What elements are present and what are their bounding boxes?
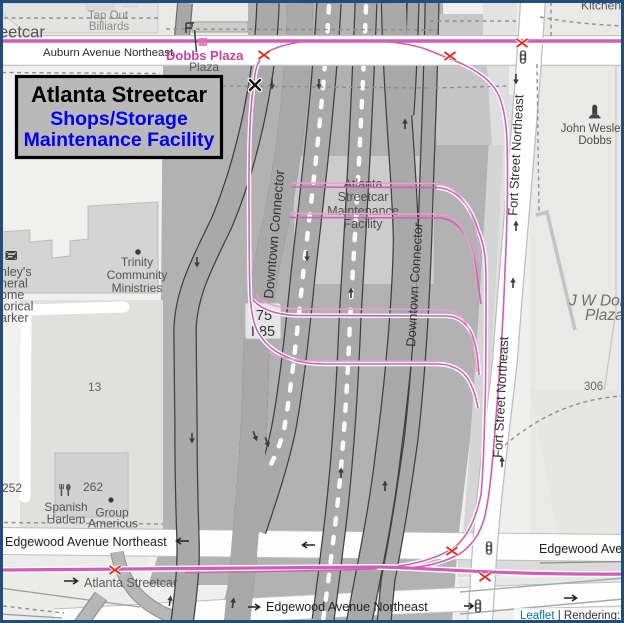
svg-text:Plaza: Plaza — [585, 307, 624, 324]
svg-text:Atlanta Streetcar: Atlanta Streetcar — [84, 576, 177, 590]
svg-text:306: 306 — [584, 381, 603, 393]
svg-text:Harlem: Harlem — [47, 512, 86, 526]
svg-text:Maintenance: Maintenance — [327, 204, 399, 218]
svg-text:Edgewood Ave: Edgewood Ave — [539, 542, 622, 556]
svg-text:Edgewood Avenue Northeast: Edgewood Avenue Northeast — [266, 600, 428, 614]
svg-text:Facility: Facility — [344, 217, 384, 231]
svg-text:Dobbs: Dobbs — [578, 135, 611, 147]
svg-text:Streetcar: Streetcar — [338, 190, 389, 204]
svg-text:Plaza: Plaza — [189, 60, 219, 74]
svg-text:262: 262 — [83, 480, 103, 494]
svg-text:13: 13 — [88, 380, 102, 394]
svg-text:Americus: Americus — [88, 517, 138, 531]
svg-text:Community: Community — [107, 268, 168, 282]
svg-text:Auburn Avenue Northeast: Auburn Avenue Northeast — [43, 47, 174, 59]
svg-text:eetcar: eetcar — [0, 24, 45, 42]
svg-text:Billiards: Billiards — [89, 21, 130, 33]
svg-text:Trinity: Trinity — [121, 255, 153, 269]
svg-text:Ministries: Ministries — [112, 281, 163, 295]
svg-text:Maintenance Facility: Maintenance Facility — [24, 129, 215, 151]
svg-text:Edgewood Avenue Northeast: Edgewood Avenue Northeast — [5, 535, 167, 549]
svg-text:Shops/Storage: Shops/Storage — [50, 108, 188, 130]
svg-text:arker: arker — [0, 311, 28, 325]
svg-text:Atlanta Streetcar: Atlanta Streetcar — [31, 82, 208, 107]
svg-text:252: 252 — [2, 481, 22, 495]
svg-text:John Wesley: John Wesley — [561, 123, 624, 135]
